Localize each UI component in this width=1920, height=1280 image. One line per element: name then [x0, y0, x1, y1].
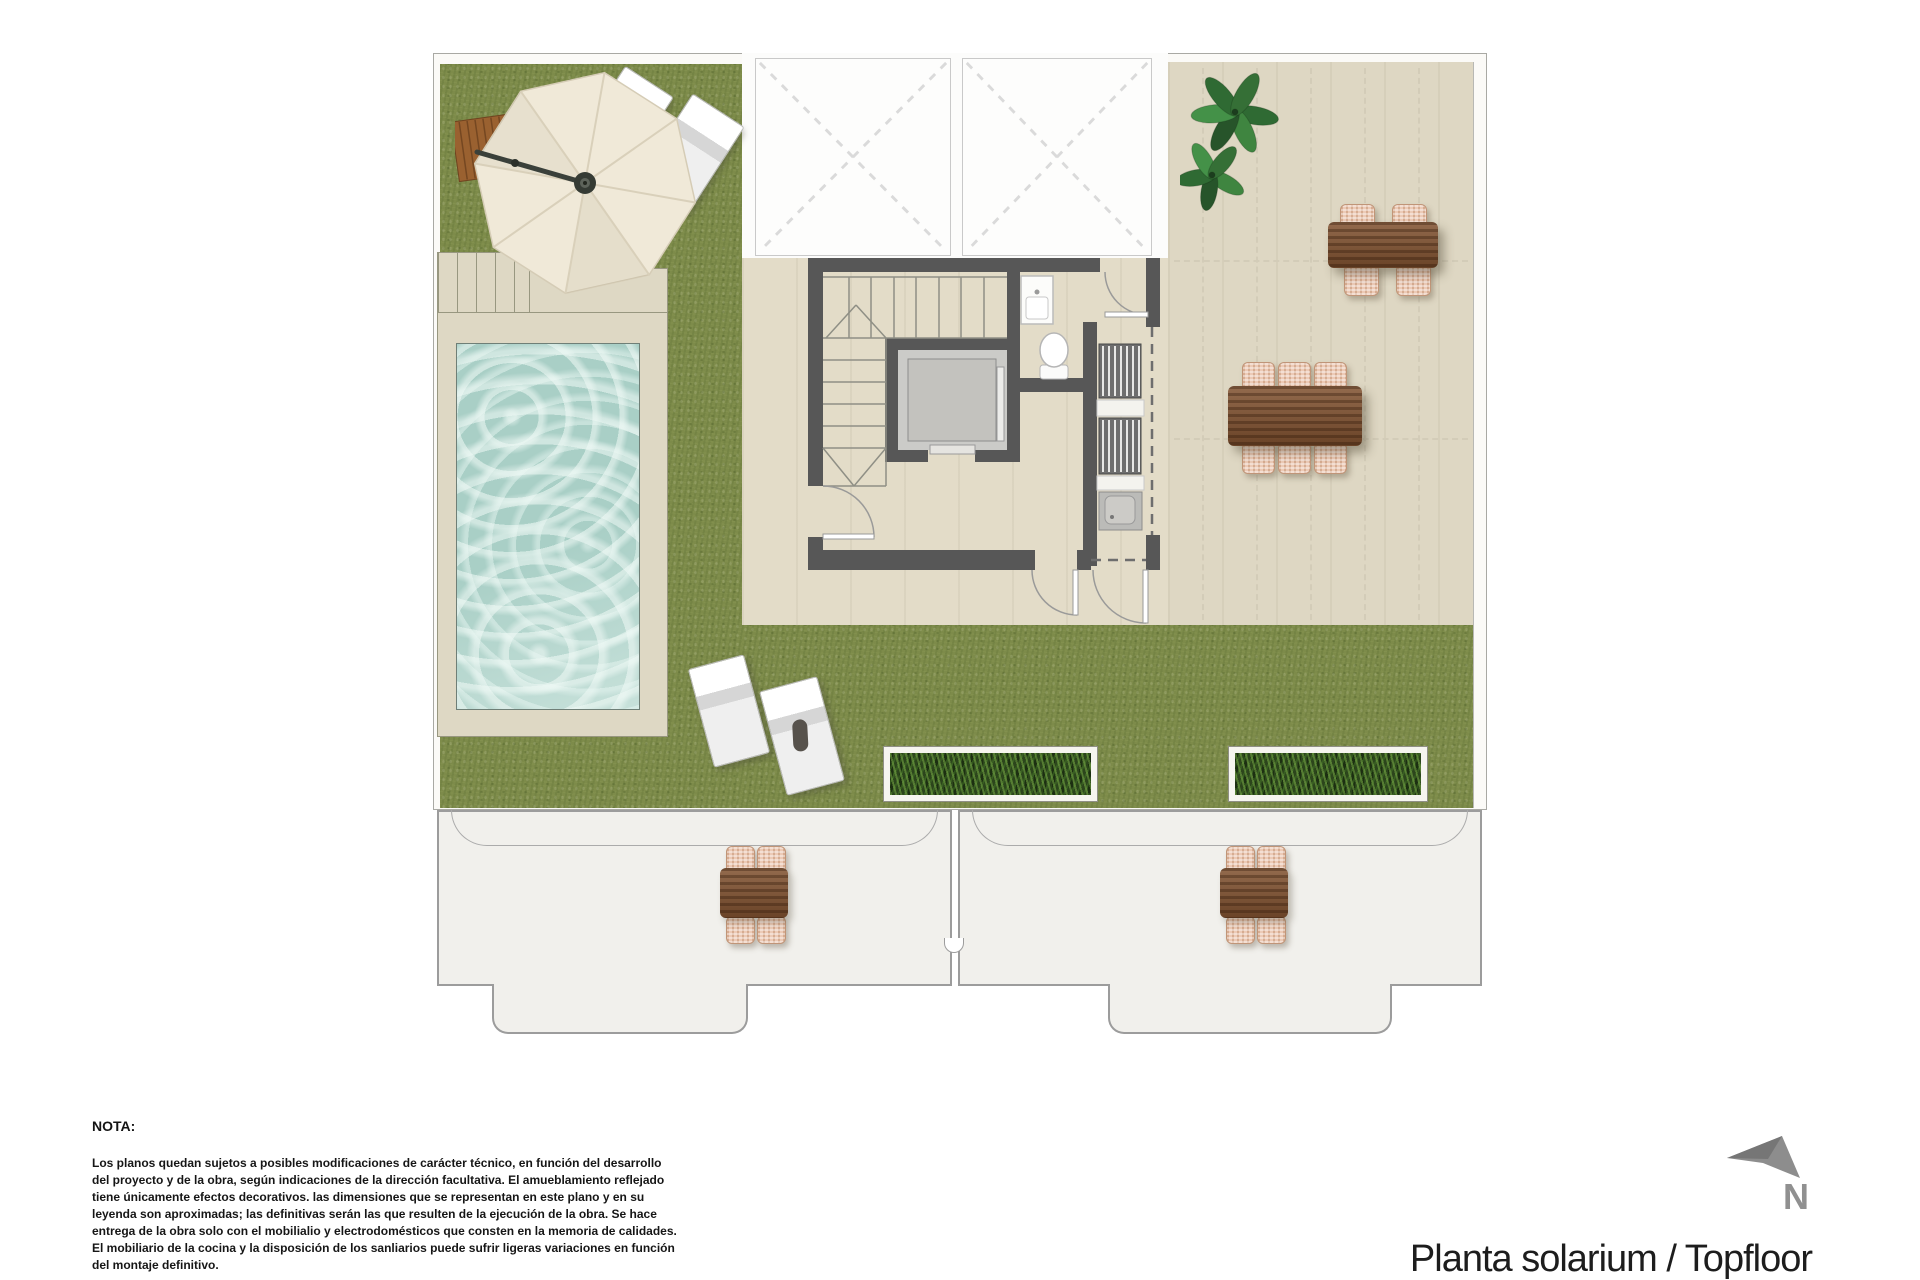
dining-chair	[1314, 442, 1347, 474]
planter-grass	[890, 753, 1091, 795]
plant	[1180, 70, 1290, 220]
notes-paragraph: Los planos quedan sujetos a posibles mod…	[92, 1155, 677, 1274]
notes-line: del montaje definitivo.	[92, 1257, 677, 1274]
planter	[883, 746, 1098, 802]
dining-chair	[726, 916, 755, 944]
lower-terrace-left-parapet	[451, 810, 938, 846]
dining-chair	[1242, 442, 1275, 474]
plan-title: Planta solarium / Topfloor	[1300, 1238, 1812, 1280]
notes-line: Los planos quedan sujetos a posibles mod…	[92, 1155, 677, 1172]
skylight-void-1	[755, 58, 951, 256]
north-label: N	[1783, 1176, 1809, 1217]
door	[1032, 570, 1078, 615]
lower-terrace-left-notch	[492, 984, 748, 1034]
dining-chair	[1396, 264, 1431, 296]
pergola-line	[1418, 68, 1420, 620]
dining-chair	[1278, 442, 1311, 474]
pool-water	[456, 343, 640, 710]
pergola-line	[1310, 68, 1312, 620]
stair-core-drawing	[805, 253, 1170, 633]
floor-plan-page: NOTA: Los planos quedan sujetos a posibl…	[0, 0, 1920, 1280]
lower-table-right	[1220, 868, 1288, 918]
north-arrow-icon: N	[1715, 1125, 1835, 1225]
dining-chair	[1344, 264, 1379, 296]
lower-table-left	[720, 868, 788, 918]
notes-line: El mobiliario de la cocina y la disposic…	[92, 1240, 677, 1257]
closet-shelf	[1097, 400, 1144, 416]
dining-table-6-seats	[1228, 386, 1362, 446]
skylight-void-2	[962, 58, 1152, 256]
notes-heading: NOTA:	[92, 1118, 135, 1134]
door	[1105, 272, 1148, 317]
notes-line: tiene únicamente efectos decorativos. la…	[92, 1189, 677, 1206]
door	[1093, 570, 1148, 623]
lower-terrace-right-parapet	[972, 810, 1468, 846]
parasol-umbrella	[455, 56, 725, 321]
washbasin-cabinet	[1021, 276, 1053, 324]
toilet	[1040, 333, 1068, 379]
terrace-parapet-line	[1473, 62, 1474, 808]
dining-chair	[1257, 916, 1286, 944]
elevator	[898, 350, 1007, 454]
planter-grass	[1235, 753, 1421, 795]
closet-shelf	[1097, 476, 1144, 490]
utility-sink	[1099, 492, 1142, 530]
dining-chair	[757, 916, 786, 944]
notes-line: entrega de la obra solo con el mobiliali…	[92, 1223, 677, 1240]
notes-line: del proyecto y de la obra, según indicac…	[92, 1172, 677, 1189]
lounger-towel	[792, 719, 809, 752]
planter	[1228, 746, 1428, 802]
louvered-unit	[1099, 344, 1141, 398]
notes-line: leyenda son aproximadas; las definitivas…	[92, 1206, 677, 1223]
skylight-cross-icon	[963, 59, 1151, 255]
lower-terrace-right-notch	[1108, 984, 1392, 1034]
louvered-unit	[1099, 418, 1141, 474]
door	[823, 486, 874, 539]
skylight-cross-icon	[756, 59, 950, 255]
pergola-line	[1364, 68, 1366, 620]
dining-chair	[1226, 916, 1255, 944]
dining-table-4-seats	[1328, 222, 1438, 268]
